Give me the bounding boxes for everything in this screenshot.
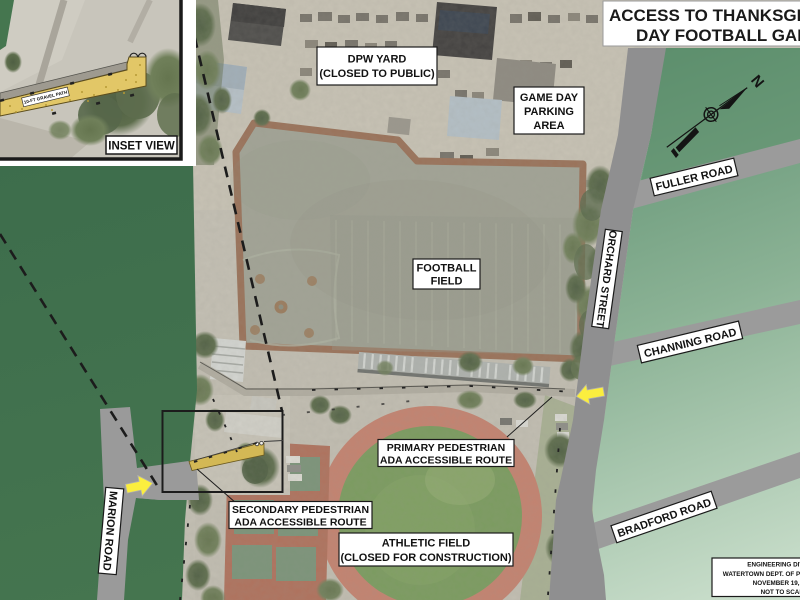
- svg-text:DPW YARD: DPW YARD: [348, 54, 407, 66]
- svg-text:DAY FOOTBALL GAME: DAY FOOTBALL GAME: [636, 26, 800, 45]
- svg-text:NOT TO SCALE: NOT TO SCALE: [761, 589, 800, 596]
- svg-text:INSET VIEW: INSET VIEW: [108, 141, 175, 153]
- svg-text:(CLOSED TO PUBLIC): (CLOSED TO PUBLIC): [319, 68, 435, 80]
- svg-text:ADA ACCESSIBLE ROUTE: ADA ACCESSIBLE ROUTE: [380, 454, 512, 466]
- svg-text:(CLOSED FOR CONSTRUCTION): (CLOSED FOR CONSTRUCTION): [340, 552, 511, 564]
- svg-text:ENGINEERING DIVISION: ENGINEERING DIVISION: [747, 562, 800, 569]
- svg-text:NOVEMBER 19, 2021: NOVEMBER 19, 2021: [753, 580, 800, 587]
- svg-text:ATHLETIC FIELD: ATHLETIC FIELD: [382, 538, 470, 550]
- svg-text:PRIMARY PEDESTRIAN: PRIMARY PEDESTRIAN: [387, 442, 505, 454]
- svg-text:PARKING: PARKING: [524, 106, 574, 118]
- svg-text:ACCESS TO THANKSGIVING: ACCESS TO THANKSGIVING: [609, 6, 800, 25]
- svg-text:SECONDARY PEDESTRIAN: SECONDARY PEDESTRIAN: [232, 504, 369, 516]
- svg-text:GAME DAY: GAME DAY: [520, 92, 579, 104]
- svg-text:FIELD: FIELD: [431, 276, 463, 288]
- svg-text:FOOTBALL: FOOTBALL: [417, 263, 477, 275]
- svg-text:WATERTOWN DEPT. OF PUBLIC WORK: WATERTOWN DEPT. OF PUBLIC WORKS: [723, 571, 800, 578]
- svg-text:ADA ACCESSIBLE ROUTE: ADA ACCESSIBLE ROUTE: [234, 516, 366, 528]
- svg-text:AREA: AREA: [533, 120, 564, 132]
